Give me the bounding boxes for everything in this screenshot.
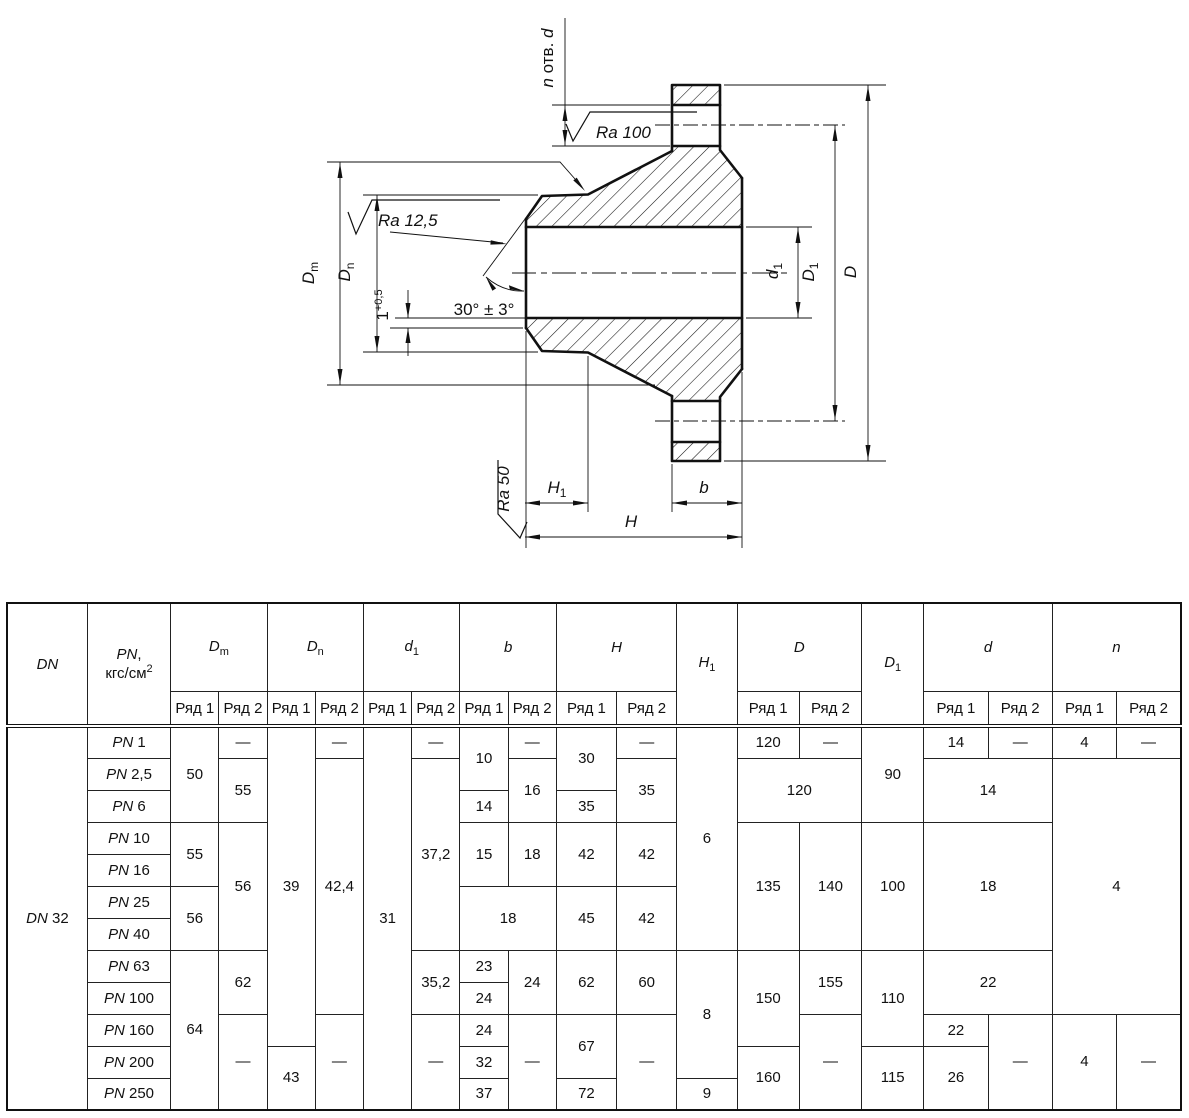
table-cell: 22 bbox=[924, 1014, 988, 1046]
table-cell: — bbox=[799, 726, 861, 758]
dimensions-table: DN PN,кгс/см2 Dm Dn d1 b H H1 D D1 d n Р… bbox=[6, 602, 1182, 1111]
row-label: PN 25 bbox=[87, 886, 170, 918]
label-dn: Dn bbox=[335, 263, 357, 282]
col-header-dm: Dm bbox=[171, 603, 267, 692]
row-label: PN 2,5 bbox=[87, 758, 170, 790]
table-cell: 42,4 bbox=[315, 758, 363, 1014]
table-cell: 37 bbox=[460, 1078, 508, 1110]
table-cell: 42 bbox=[617, 886, 677, 950]
table-body: DN 32PN 150—39—31—10—30—6120—9014—4—PN 2… bbox=[7, 726, 1181, 1110]
table-cell: 32 bbox=[460, 1046, 508, 1078]
table-cell: — bbox=[617, 1014, 677, 1110]
subheader-series: Ряд 1 bbox=[1052, 692, 1116, 727]
label-ra125: Ra 12,5 bbox=[378, 211, 438, 230]
subheader-series: Ряд 1 bbox=[737, 692, 799, 727]
table-cell: 120 bbox=[737, 726, 799, 758]
label-land: 1+0,5 bbox=[373, 289, 392, 320]
table-cell: 35,2 bbox=[412, 950, 460, 1014]
subheader-series: Ряд 2 bbox=[219, 692, 267, 727]
row-label: PN 10 bbox=[87, 822, 170, 854]
table-cell: — bbox=[315, 726, 363, 758]
subheader-series: Ряд 2 bbox=[508, 692, 556, 727]
table-cell: 35 bbox=[556, 790, 616, 822]
table-cell: — bbox=[799, 1014, 861, 1110]
row-label: PN 100 bbox=[87, 982, 170, 1014]
table-cell: 14 bbox=[460, 790, 508, 822]
table-cell: — bbox=[988, 726, 1052, 758]
table-cell: 115 bbox=[862, 1046, 924, 1110]
table-cell: 26 bbox=[924, 1046, 988, 1110]
row-label: PN 200 bbox=[87, 1046, 170, 1078]
table-cell: 18 bbox=[460, 886, 556, 950]
table-cell: 6 bbox=[677, 726, 737, 950]
label-ra100: Ra 100 bbox=[596, 123, 651, 142]
subheader-series: Ряд 1 bbox=[460, 692, 508, 727]
table-cell: 15 bbox=[460, 822, 508, 886]
table-cell: 67 bbox=[556, 1014, 616, 1078]
dimension-lines bbox=[327, 18, 886, 548]
table-cell: 18 bbox=[924, 822, 1053, 950]
table-cell: — bbox=[219, 726, 267, 758]
label-d1: d1 bbox=[763, 263, 785, 279]
subheader-series: Ряд 1 bbox=[924, 692, 988, 727]
table-cell: 31 bbox=[364, 726, 412, 1110]
table-cell: 45 bbox=[556, 886, 616, 950]
table-row: DN 32PN 150—39—31—10—30—6120—9014—4— bbox=[7, 726, 1181, 758]
label-dm: Dm bbox=[299, 262, 321, 284]
table-cell: — bbox=[219, 1014, 267, 1110]
subheader-series: Ряд 1 bbox=[171, 692, 219, 727]
row-label: PN 1 bbox=[87, 726, 170, 758]
table-cell: 90 bbox=[862, 726, 924, 822]
table-cell: 100 bbox=[862, 822, 924, 950]
col-header-d1: d1 bbox=[364, 603, 460, 692]
table-cell: 35 bbox=[617, 758, 677, 822]
table-cell: 64 bbox=[171, 950, 219, 1110]
table-cell: — bbox=[1117, 1014, 1181, 1110]
arrowheads bbox=[338, 86, 871, 540]
label-h: H bbox=[625, 512, 638, 531]
table-cell: 4 bbox=[1052, 758, 1181, 1014]
subheader-series: Ряд 2 bbox=[412, 692, 460, 727]
label-ra50: Ra 50 bbox=[494, 466, 513, 512]
table-cell: 37,2 bbox=[412, 758, 460, 950]
table-cell: — bbox=[1117, 726, 1181, 758]
row-label: PN 16 bbox=[87, 854, 170, 886]
row-label: PN 6 bbox=[87, 790, 170, 822]
table-cell: 23 bbox=[460, 950, 508, 982]
table-cell: 62 bbox=[556, 950, 616, 1014]
table-cell: 150 bbox=[737, 950, 799, 1046]
subheader-series: Ряд 1 bbox=[267, 692, 315, 727]
col-header-d-hole: d bbox=[924, 603, 1053, 692]
table-cell: 43 bbox=[267, 1046, 315, 1110]
col-header-dd1: D1 bbox=[862, 603, 924, 726]
table-cell: 62 bbox=[219, 950, 267, 1014]
table-cell: 72 bbox=[556, 1078, 616, 1110]
table-cell: 10 bbox=[460, 726, 508, 790]
row-label: PN 160 bbox=[87, 1014, 170, 1046]
table-cell: — bbox=[988, 1014, 1052, 1110]
table-cell: 39 bbox=[267, 726, 315, 1046]
table-cell: 8 bbox=[677, 950, 737, 1078]
table-cell: 18 bbox=[508, 822, 556, 886]
label-dd1: D1 bbox=[799, 262, 821, 281]
table-cell: 56 bbox=[219, 822, 267, 950]
col-header-h1: H1 bbox=[677, 603, 737, 726]
row-label: PN 63 bbox=[87, 950, 170, 982]
table-cell: 16 bbox=[508, 758, 556, 822]
label-d-outer: D bbox=[841, 266, 860, 278]
table-cell: 50 bbox=[171, 726, 219, 822]
subheader-series: Ряд 2 bbox=[315, 692, 363, 727]
table-cell: 42 bbox=[556, 822, 616, 886]
table-cell: 24 bbox=[460, 1014, 508, 1046]
table-cell: 9 bbox=[677, 1078, 737, 1110]
table-cell: 55 bbox=[219, 758, 267, 822]
table-cell: 110 bbox=[862, 950, 924, 1046]
table-cell: 60 bbox=[617, 950, 677, 1014]
page: n отв. d Ra 100 Ra 12,5 Ra 50 30° ± 3° 1… bbox=[0, 0, 1189, 1118]
col-header-dn2: Dn bbox=[267, 603, 363, 692]
table-row: PN 63646235,223246260815015511022 bbox=[7, 950, 1181, 982]
table-cell: — bbox=[508, 726, 556, 758]
table-cell: 24 bbox=[508, 950, 556, 1014]
table-cell: 4 bbox=[1052, 726, 1116, 758]
table-cell: 4 bbox=[1052, 1014, 1116, 1110]
col-header-pn: PN,кгс/см2 bbox=[87, 603, 170, 726]
table-row: PN 1055561518424213514010018 bbox=[7, 822, 1181, 854]
subheader-series: Ряд 1 bbox=[556, 692, 616, 727]
col-header-d-outer: D bbox=[737, 603, 862, 692]
table-cell: 140 bbox=[799, 822, 861, 950]
col-header-dn: DN bbox=[7, 603, 87, 726]
subheader-series: Ряд 2 bbox=[799, 692, 861, 727]
table-cell: 160 bbox=[737, 1046, 799, 1110]
label-angle: 30° ± 3° bbox=[454, 300, 515, 319]
table-cell: 120 bbox=[737, 758, 862, 822]
label-n-holes: n отв. d bbox=[538, 28, 557, 88]
subheader-series: Ряд 2 bbox=[988, 692, 1052, 727]
table-cell: 14 bbox=[924, 758, 1053, 822]
label-b: b bbox=[699, 478, 708, 497]
cell-dn: DN 32 bbox=[7, 726, 87, 1110]
table-cell: — bbox=[412, 1014, 460, 1110]
col-header-n: n bbox=[1052, 603, 1181, 692]
table-cell: 22 bbox=[924, 950, 1053, 1014]
table-cell: 56 bbox=[171, 886, 219, 950]
col-header-b: b bbox=[460, 603, 556, 692]
table-cell: 30 bbox=[556, 726, 616, 790]
flange-section-svg: n отв. d Ra 100 Ra 12,5 Ra 50 30° ± 3° 1… bbox=[0, 0, 1189, 585]
row-label: PN 250 bbox=[87, 1078, 170, 1110]
table-cell: — bbox=[508, 1014, 556, 1110]
col-header-h: H bbox=[556, 603, 677, 692]
subheader-series: Ряд 1 bbox=[364, 692, 412, 727]
row-label: PN 40 bbox=[87, 918, 170, 950]
table-cell: 55 bbox=[171, 822, 219, 886]
subheader-series: Ряд 2 bbox=[617, 692, 677, 727]
table-cell: 155 bbox=[799, 950, 861, 1014]
table-cell: — bbox=[315, 1014, 363, 1110]
table-cell: 135 bbox=[737, 822, 799, 950]
table-cell: 42 bbox=[617, 822, 677, 886]
table-cell: 14 bbox=[924, 726, 988, 758]
table-cell: — bbox=[412, 726, 460, 758]
table-cell: 24 bbox=[460, 982, 508, 1014]
label-h1: H1 bbox=[548, 478, 567, 500]
subheader-series: Ряд 2 bbox=[1117, 692, 1181, 727]
flange-drawing: n отв. d Ra 100 Ra 12,5 Ra 50 30° ± 3° 1… bbox=[0, 0, 1189, 585]
table-cell: — bbox=[617, 726, 677, 758]
